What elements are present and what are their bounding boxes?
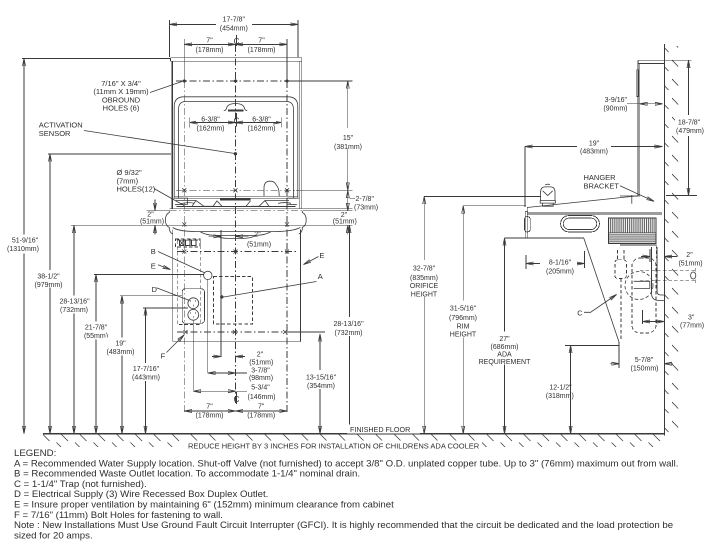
- svg-text:7": 7": [206, 403, 213, 410]
- svg-text:28-13/16": 28-13/16": [59, 298, 90, 305]
- svg-text:(979mm): (979mm): [34, 282, 62, 289]
- svg-text:(178mm): (178mm): [195, 47, 223, 54]
- svg-text:6-3/8": 6-3/8": [252, 117, 271, 124]
- svg-text:F: F: [161, 352, 166, 361]
- svg-text:3-7/8": 3-7/8": [251, 367, 270, 374]
- svg-text:ORIFICE: ORIFICE: [410, 283, 439, 290]
- svg-text:13-15/16": 13-15/16": [306, 375, 337, 382]
- svg-text:12-1/2": 12-1/2": [549, 385, 572, 392]
- svg-text:REDUCE HEIGHT BY 3 INCHES FOR: REDUCE HEIGHT BY 3 INCHES FOR INSTALLATI…: [188, 441, 480, 450]
- svg-text:19": 19": [115, 340, 126, 347]
- svg-text:2": 2": [257, 351, 264, 358]
- svg-text:7": 7": [258, 403, 265, 410]
- svg-text:RIM: RIM: [457, 323, 470, 330]
- svg-text:5-7/8": 5-7/8": [635, 357, 654, 364]
- svg-text:(178mm): (178mm): [247, 413, 275, 420]
- svg-text:(162mm): (162mm): [196, 126, 224, 133]
- svg-text:BRACKET: BRACKET: [584, 182, 620, 191]
- svg-text:17-7/8": 17-7/8": [223, 16, 246, 23]
- svg-text:FINISHED FLOOR: FINISHED FLOOR: [350, 425, 410, 434]
- svg-text:2-7/8": 2-7/8": [356, 196, 375, 203]
- svg-text:(51mm): (51mm): [333, 218, 357, 225]
- svg-text:E: E: [151, 261, 156, 270]
- svg-text:28-13/16": 28-13/16": [333, 321, 364, 328]
- svg-text:B: B: [151, 247, 156, 256]
- svg-text:(90mm): (90mm): [603, 106, 627, 113]
- svg-text:(835mm): (835mm): [410, 275, 438, 282]
- svg-text:(178mm): (178mm): [195, 413, 223, 420]
- svg-text:5-3/4": 5-3/4": [251, 384, 270, 391]
- svg-text:21-7/8": 21-7/8": [85, 324, 108, 331]
- svg-text:(73mm): (73mm): [354, 204, 378, 211]
- svg-text:(318mm): (318mm): [546, 393, 574, 400]
- svg-text:Note : New Installations Must: Note : New Installations Must Use Ground…: [14, 520, 673, 531]
- svg-text:(483mm): (483mm): [580, 148, 608, 155]
- svg-text:(732mm): (732mm): [334, 330, 362, 337]
- svg-text:(1310mm): (1310mm): [7, 246, 39, 253]
- svg-text:(443mm): (443mm): [132, 374, 160, 381]
- svg-text:38-1/2": 38-1/2": [37, 273, 60, 280]
- svg-text:(205mm): (205mm): [546, 268, 574, 275]
- svg-text:A: A: [318, 272, 323, 281]
- svg-text:(77mm): (77mm): [680, 322, 704, 329]
- svg-text:E: E: [319, 251, 324, 260]
- svg-text:(178mm): (178mm): [247, 47, 275, 54]
- svg-text:2": 2": [686, 252, 693, 259]
- svg-text:7": 7": [206, 38, 213, 45]
- svg-text:(51mm): (51mm): [678, 261, 702, 268]
- svg-text:(381mm): (381mm): [334, 144, 362, 151]
- svg-text:HEIGHT: HEIGHT: [411, 291, 438, 298]
- svg-text:D: D: [152, 285, 158, 294]
- svg-text:(483mm): (483mm): [106, 349, 134, 356]
- svg-text:51-9/16": 51-9/16": [12, 238, 39, 245]
- svg-text:(162mm): (162mm): [247, 126, 275, 133]
- svg-text:(686mm): (686mm): [490, 344, 518, 351]
- svg-text:15": 15": [343, 135, 354, 142]
- svg-text:2": 2": [147, 212, 154, 219]
- svg-text:3-9/16": 3-9/16": [605, 97, 628, 104]
- svg-text:19": 19": [589, 140, 600, 147]
- svg-text:(51mm): (51mm): [140, 219, 164, 226]
- svg-text:HOLES(12): HOLES(12): [117, 185, 156, 194]
- svg-text:HOLES (6): HOLES (6): [103, 104, 140, 113]
- svg-text:HEIGHT: HEIGHT: [450, 332, 477, 339]
- svg-text:(354mm): (354mm): [307, 383, 335, 390]
- svg-text:(479mm): (479mm): [676, 128, 704, 135]
- svg-text:31-5/16": 31-5/16": [450, 306, 477, 313]
- svg-text:(51mm): (51mm): [249, 359, 273, 366]
- svg-text:32-7/8": 32-7/8": [413, 265, 436, 272]
- svg-text:(98mm): (98mm): [249, 375, 273, 382]
- svg-text:(51mm): (51mm): [247, 242, 271, 249]
- svg-text:sized for 20 amps.: sized for 20 amps.: [14, 530, 93, 541]
- svg-text:C: C: [577, 308, 583, 317]
- svg-text:8-1/16": 8-1/16": [549, 260, 572, 267]
- svg-text:(150mm): (150mm): [630, 366, 658, 373]
- svg-text:REQUIREMENT: REQUIREMENT: [479, 359, 531, 366]
- svg-text:SENSOR: SENSOR: [39, 129, 71, 138]
- svg-text:ADA: ADA: [497, 352, 512, 359]
- svg-text:2": 2": [254, 232, 261, 239]
- svg-text:(454mm): (454mm): [220, 25, 248, 32]
- svg-text:18-7/8": 18-7/8": [678, 119, 701, 126]
- svg-text:17-7/16": 17-7/16": [133, 366, 160, 373]
- svg-text:(796mm): (796mm): [449, 315, 477, 322]
- svg-text:27": 27": [499, 336, 510, 343]
- svg-text:(146mm): (146mm): [247, 394, 275, 401]
- svg-text:(732mm): (732mm): [60, 307, 88, 314]
- svg-text:3": 3": [688, 315, 695, 322]
- svg-text:6-3/8": 6-3/8": [201, 117, 220, 124]
- svg-text:7": 7": [258, 38, 265, 45]
